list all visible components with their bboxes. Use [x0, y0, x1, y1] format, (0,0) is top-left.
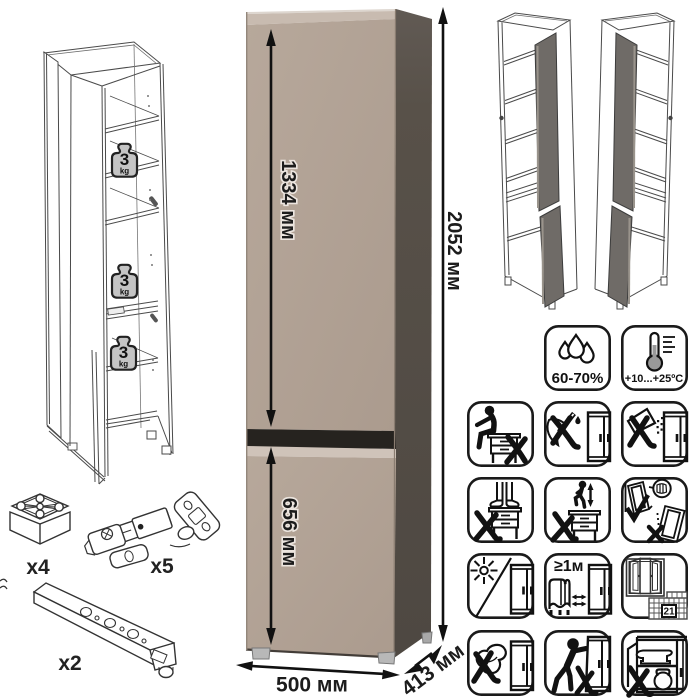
svg-text:1334 мм: 1334 мм [277, 160, 299, 240]
svg-text:kg: kg [120, 167, 129, 176]
svg-text:656 мм: 656 мм [278, 498, 300, 567]
svg-text:+10...+25ºC: +10...+25ºC [625, 373, 684, 385]
svg-text:21: 21 [663, 607, 675, 618]
svg-text:kg: kg [119, 360, 128, 369]
svg-text:≥1м: ≥1м [554, 558, 584, 575]
svg-text:x4: x4 [26, 556, 50, 579]
svg-text:x5: x5 [150, 555, 174, 578]
svg-text:500 мм: 500 мм [276, 674, 348, 697]
svg-text:60-70%: 60-70% [552, 370, 604, 387]
svg-text:x2: x2 [58, 652, 81, 675]
svg-text:2052 мм: 2052 мм [443, 211, 465, 291]
svg-text:kg: kg [120, 288, 129, 297]
svg-text:413 мм: 413 мм [397, 639, 468, 700]
